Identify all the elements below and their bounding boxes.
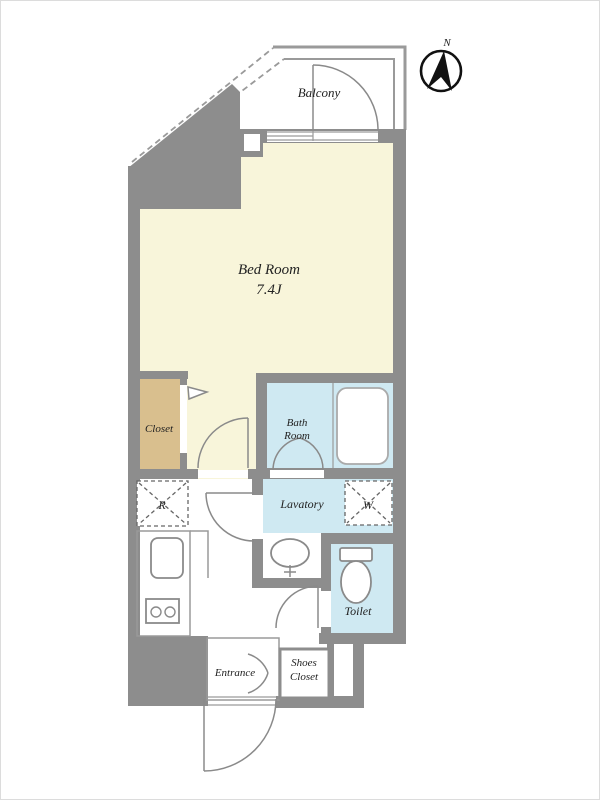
corridor-door-opening bbox=[198, 470, 248, 478]
lavatory-door-arc bbox=[206, 493, 254, 541]
balcony-label: Balcony bbox=[298, 85, 341, 100]
closet-label: Closet bbox=[145, 423, 174, 435]
pipe-space-recess bbox=[334, 644, 353, 696]
toilet-label: Toilet bbox=[345, 604, 373, 618]
entrance-label: Entrance bbox=[214, 667, 255, 679]
stove-burner-right bbox=[165, 607, 175, 617]
stove-burner-left bbox=[151, 607, 161, 617]
refrigerator-space-label: R bbox=[157, 498, 166, 512]
washer-space-label: W bbox=[363, 498, 374, 512]
floor-plan-page: BalconyBed Room7.4JClosetBathRoomLavator… bbox=[0, 0, 600, 800]
wall-corridor-bottom-left bbox=[128, 469, 198, 479]
bathtub bbox=[337, 388, 388, 464]
bedroom-label: Bed Room bbox=[238, 262, 300, 278]
pillar-inset bbox=[244, 134, 260, 151]
wall-left bbox=[128, 166, 140, 706]
wall-closet-right-stub-top bbox=[180, 373, 187, 385]
lavatory-label: Lavatory bbox=[279, 497, 324, 511]
north-label: N bbox=[442, 37, 451, 49]
shoes-closet-label-line2: Closet bbox=[290, 671, 319, 683]
wall-ps-right bbox=[353, 641, 364, 698]
bedroom-size-label: 7.4J bbox=[256, 282, 283, 298]
bathroom-label-line2: Room bbox=[283, 430, 310, 442]
lavatory-sink bbox=[271, 539, 309, 567]
compass bbox=[421, 51, 461, 91]
wall-closet-right-stub-bottom bbox=[180, 453, 187, 469]
toilet-door-arc bbox=[276, 586, 318, 628]
wall-toilet-left-upper bbox=[321, 544, 331, 591]
bath-door-opening bbox=[270, 470, 324, 478]
wall-toilet-top bbox=[321, 533, 406, 544]
compass-needle bbox=[427, 51, 452, 91]
toilet-bowl bbox=[341, 561, 371, 603]
wall-closet-top bbox=[128, 371, 188, 379]
toilet-tank bbox=[340, 548, 372, 561]
shoes-closet-label-line1: Shoes bbox=[291, 657, 317, 669]
kitchen-sink bbox=[151, 538, 183, 578]
wall-right bbox=[393, 129, 406, 644]
wall-bath-top bbox=[256, 373, 406, 383]
floor-plan-drawing: BalconyBed Room7.4JClosetBathRoomLavator… bbox=[1, 1, 600, 800]
bathroom-label-line1: Bath bbox=[287, 417, 308, 429]
wall-lavatory-bottom bbox=[252, 578, 331, 588]
entrance-door-arc bbox=[204, 699, 276, 771]
wall-bath-left bbox=[256, 383, 267, 479]
wall-bottom-left-block bbox=[128, 636, 208, 706]
kitchen-floor-edge bbox=[190, 531, 208, 578]
